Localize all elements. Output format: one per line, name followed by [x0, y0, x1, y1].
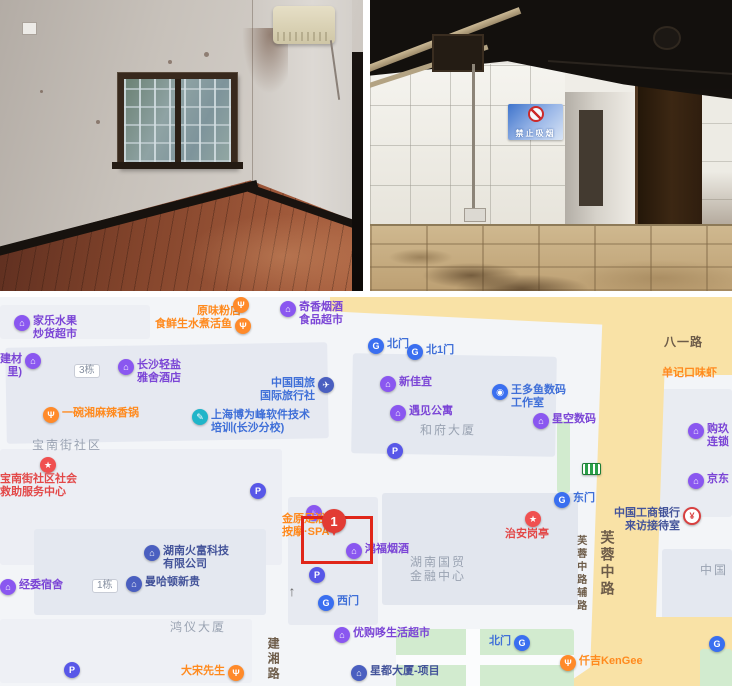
map-poi-company[interactable]: ⌂湖南火富科技有限公司 — [144, 545, 229, 571]
poi-label: 宝南街社区社会救助服务中心 — [0, 473, 77, 499]
park-path — [396, 655, 574, 665]
company-icon: ⌂ — [144, 545, 160, 561]
redstar-icon: ★ — [525, 511, 541, 527]
redstar-icon: ★ — [40, 457, 56, 473]
wall-conduit — [472, 64, 475, 210]
busstop-icon — [582, 463, 601, 475]
hotel-icon: ⌂ — [118, 359, 134, 375]
gate-icon: G — [318, 595, 334, 611]
arrow-icon: ↑ — [284, 583, 300, 599]
map-poi-arrow[interactable]: ↑ — [284, 583, 300, 599]
wall-socket — [464, 208, 486, 222]
poi-label: 建材里) — [0, 353, 22, 379]
shop-icon: ⌂ — [0, 579, 16, 595]
poi-label: 中国国旅国际旅行社 — [260, 377, 315, 403]
map-label: 宝南街社区 — [32, 438, 102, 452]
poi-label: 星空数码 — [552, 413, 596, 426]
wall-stain — [96, 120, 100, 124]
room-photo-bedroom[interactable] — [0, 0, 363, 291]
shop-icon: ⌂ — [14, 315, 30, 331]
poi-label: 建湘路 — [266, 637, 280, 682]
map-poi-shop[interactable]: ⌂优购哆生活超市 — [334, 627, 430, 643]
poi-label: 仟吉KenGee — [579, 655, 643, 668]
wall-stain — [40, 90, 43, 93]
company-icon: ⌂ — [126, 576, 142, 592]
poi-label: 东门 — [573, 492, 595, 505]
poi-label: 芙蓉中路 — [599, 530, 616, 598]
map-poi-food[interactable]: Ψ食鲜生水煮活鱼 — [155, 318, 251, 334]
map-poi-gate[interactable]: G — [709, 636, 725, 652]
gate-icon: G — [709, 636, 725, 652]
map-poi-shop[interactable]: ⌂京东 — [688, 473, 729, 489]
food-icon: Ψ — [228, 665, 244, 681]
barred-window — [118, 73, 237, 168]
gate-icon: G — [368, 338, 384, 354]
poi-label: 遇见公寓 — [409, 405, 453, 418]
poi-label: 新佳宜 — [399, 376, 432, 389]
food-icon: Ψ — [43, 407, 59, 423]
stained-tile-floor — [370, 224, 732, 291]
shop-icon: ⌂ — [688, 423, 704, 439]
gate-icon: G — [407, 344, 423, 360]
selected-location-marker[interactable]: 1 — [322, 509, 346, 533]
map-poi-company[interactable]: ⌂曼哈顿新贵 — [126, 576, 200, 592]
poi-label: 奇香烟酒食品超市 — [299, 301, 343, 327]
ceiling-vent-box — [432, 34, 484, 72]
poi-label: 上海博为峰软件技术培训(长沙分校) — [211, 409, 310, 435]
map-poi-food[interactable]: Ψ仟吉KenGee — [560, 655, 643, 671]
map-poi-gate[interactable]: G东门 — [554, 492, 595, 508]
map-poi-hotel[interactable]: ⌂长沙轻盐雅舍酒店 — [118, 359, 181, 385]
map-label: 建湘路 — [266, 637, 280, 682]
hotel-icon: ⌂ — [390, 405, 406, 421]
poi-label: 一碗湘麻辣香锅 — [62, 407, 139, 420]
poi-label: 京东 — [707, 473, 729, 486]
map-poi-shop[interactable]: ⌂建材里) — [0, 353, 41, 379]
poi-label: 王多鱼数码工作室 — [511, 384, 566, 410]
map-building-block — [382, 493, 578, 605]
map-poi-camera[interactable]: ◉王多鱼数码工作室 — [492, 384, 566, 410]
poi-label: 3栋 — [74, 364, 100, 378]
poi-label: 和府大厦 — [420, 423, 476, 437]
map-poi-bank[interactable]: ¥中国工商银行来访接待室 — [614, 507, 701, 533]
poi-label: 大宋先生 — [181, 665, 225, 678]
shop-icon: ⌂ — [25, 353, 41, 369]
map-poi-company[interactable]: ⌂星都大厦-项目 — [351, 665, 440, 681]
map-label: 和府大厦 — [420, 423, 476, 437]
food-icon: Ψ — [233, 297, 249, 313]
map-poi-food[interactable]: Ψ — [233, 297, 249, 313]
shop-icon: ⌂ — [380, 376, 396, 392]
parking-icon: P — [387, 443, 403, 459]
poi-label: 经委宿舍 — [19, 579, 63, 592]
map-poi-busstop[interactable] — [582, 463, 601, 475]
poi-label: 湖南火富科技有限公司 — [163, 545, 229, 571]
poi-label: 1栋 — [92, 579, 118, 593]
travel-icon: ✈ — [318, 377, 334, 393]
food-icon: Ψ — [235, 318, 251, 334]
bank-icon: ¥ — [683, 507, 701, 525]
map-poi-hotel[interactable]: ⌂遇见公寓 — [390, 405, 453, 421]
map-poi-shop[interactable]: ⌂经委宿舍 — [0, 579, 63, 595]
poi-label: 芙蓉中路辅路 — [574, 535, 586, 613]
no-smoking-text: 禁止吸烟 — [508, 128, 563, 139]
map-label[interactable]: 单记口味虾 — [662, 367, 717, 380]
round-vent — [653, 26, 681, 50]
parking-icon: P — [250, 483, 266, 499]
map-poi-shop[interactable]: ⌂家乐水果炒货超市 — [14, 315, 77, 341]
poi-label: 治安岗亭 — [505, 528, 549, 541]
poi-label: 北门 — [387, 338, 409, 351]
poi-label: 中国 — [700, 563, 728, 577]
tiled-wall — [370, 64, 565, 226]
poi-label: 西门 — [337, 595, 359, 608]
poi-label: 中国工商银行来访接待室 — [614, 507, 680, 533]
listing-screenshot: 禁止吸烟 1 ⌂家乐水果炒货超市原味粉店ΨΨ食鲜生水煮活鱼⌂奇香烟 — [0, 0, 732, 686]
map-poi-shop[interactable]: ⌂星空数码 — [533, 413, 596, 429]
green-area — [700, 649, 732, 686]
poi-label: 宝南街社区 — [32, 438, 102, 452]
poi-label: 北门 — [489, 635, 511, 648]
shop-icon: ⌂ — [280, 301, 296, 317]
map-label[interactable]: 治安岗亭 — [505, 528, 549, 541]
wall-outlet — [22, 22, 37, 35]
poi-label: 北1门 — [426, 344, 454, 357]
poi-label: 购玖连锁 — [707, 423, 729, 449]
poi-label: 食鲜生水煮活鱼 — [155, 318, 232, 331]
window-sash — [175, 79, 181, 162]
map-building-block — [662, 549, 732, 625]
shop-icon: ⌂ — [334, 627, 350, 643]
poi-label: 星都大厦-项目 — [370, 665, 440, 678]
map-poi-food[interactable]: Ψ一碗湘麻辣香锅 — [43, 407, 139, 423]
doorway-shadow — [352, 52, 363, 291]
wood-door — [635, 78, 708, 242]
no-smoking-icon — [528, 106, 544, 122]
map-poi-parking[interactable]: P — [250, 483, 266, 499]
camera-icon: ◉ — [492, 384, 508, 400]
map-poi-redstar[interactable]: ★ — [40, 457, 56, 473]
wall-stain — [168, 60, 172, 64]
map-label: 中国 — [700, 563, 728, 577]
map-poi-shop[interactable]: ⌂新佳宜 — [380, 376, 432, 392]
map-label: 湖南国贸金融中心 — [410, 555, 466, 583]
parking-icon: P — [64, 662, 80, 678]
map-poi-gate[interactable]: G北门 — [489, 635, 530, 651]
room-photo-basement[interactable]: 禁止吸烟 — [370, 0, 732, 291]
shop-icon: ⌂ — [533, 413, 549, 429]
corridor-door — [579, 110, 603, 206]
corridor — [565, 92, 635, 226]
map-label[interactable]: 1栋 — [92, 579, 118, 593]
poi-label: 曼哈顿新贵 — [145, 576, 200, 589]
map-poi-shop[interactable]: ⌂奇香烟酒食品超市 — [280, 301, 343, 327]
map-poi-travel[interactable]: ✈中国国旅国际旅行社 — [260, 377, 334, 403]
map-poi-training[interactable]: ✎上海博为峰软件技术培训(长沙分校) — [192, 409, 310, 435]
company-icon: ⌂ — [351, 665, 367, 681]
map-label: 芙蓉中路 — [599, 530, 616, 598]
poi-label: 八一路 — [664, 335, 703, 349]
poi-label: 优购哆生活超市 — [353, 627, 430, 640]
air-conditioner-unit — [273, 6, 335, 44]
map-poi-food[interactable]: Ψ大宋先生 — [181, 665, 244, 681]
wall-stain — [204, 52, 209, 57]
poi-label: 家乐水果炒货超市 — [33, 315, 77, 341]
poi-label: 单记口味虾 — [662, 367, 717, 380]
training-icon: ✎ — [192, 409, 208, 425]
gate-icon: G — [554, 492, 570, 508]
gate-icon: G — [514, 635, 530, 651]
poi-label: 湖南国贸金融中心 — [410, 555, 466, 583]
map-label: 八一路 — [664, 335, 703, 349]
map-building-block — [34, 529, 266, 615]
no-smoking-sign: 禁止吸烟 — [508, 104, 563, 140]
map-label[interactable]: 3栋 — [74, 364, 100, 378]
map-label: 鸿仪大厦 — [170, 620, 226, 634]
map-poi-gate[interactable]: G北门 — [368, 338, 409, 354]
window-sill — [112, 162, 243, 169]
location-map[interactable]: 1 ⌂家乐水果炒货超市原味粉店ΨΨ食鲜生水煮活鱼⌂奇香烟酒食品超市⌂建材里)3栋… — [0, 297, 732, 686]
map-poi-gate[interactable]: G北1门 — [407, 344, 454, 360]
shop-icon: ⌂ — [688, 473, 704, 489]
poi-label: 鸿仪大厦 — [170, 620, 226, 634]
marker-number: 1 — [330, 514, 337, 529]
parking-icon: P — [309, 567, 325, 583]
food-icon: Ψ — [560, 655, 576, 671]
map-label[interactable]: 宝南街社区社会救助服务中心 — [0, 473, 77, 499]
green-strip — [557, 421, 570, 493]
map-poi-parking[interactable]: P — [387, 443, 403, 459]
map-poi-parking[interactable]: P — [64, 662, 80, 678]
poi-label: 长沙轻盐雅舍酒店 — [137, 359, 181, 385]
map-poi-gate[interactable]: G西门 — [318, 595, 359, 611]
map-poi-shop[interactable]: ⌂购玖连锁 — [688, 423, 729, 449]
map-poi-redstar[interactable]: ★ — [525, 511, 541, 527]
map-label: 芙蓉中路辅路 — [574, 535, 586, 613]
map-poi-parking[interactable]: P — [309, 567, 325, 583]
